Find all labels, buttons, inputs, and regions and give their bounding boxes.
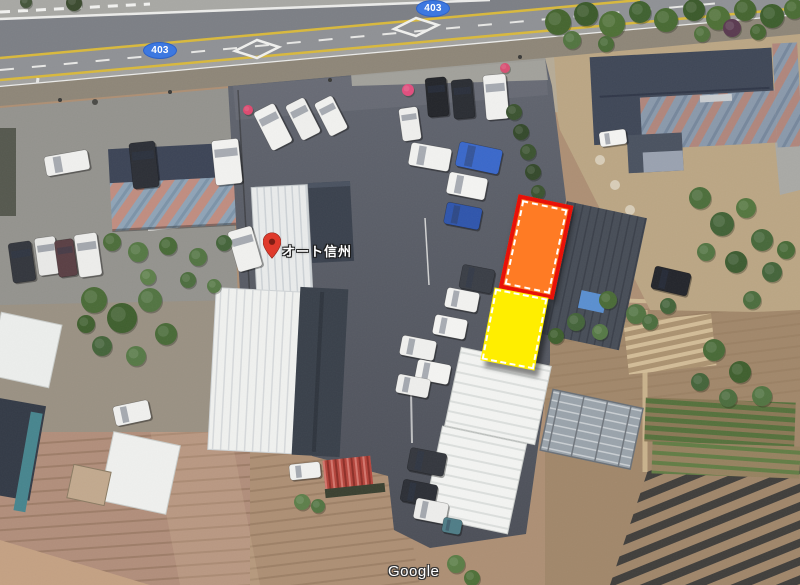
- google-maps-satellite-view[interactable]: 403 403 オート信州 Google: [0, 0, 800, 585]
- route-badge-403: 403: [416, 0, 450, 17]
- google-watermark: Google: [388, 563, 439, 580]
- route-badge-403: 403: [143, 42, 177, 59]
- place-pin[interactable]: [263, 232, 281, 259]
- place-label[interactable]: オート信州: [282, 241, 352, 260]
- photo-grain: [0, 0, 800, 585]
- satellite-imagery[interactable]: [0, 0, 800, 585]
